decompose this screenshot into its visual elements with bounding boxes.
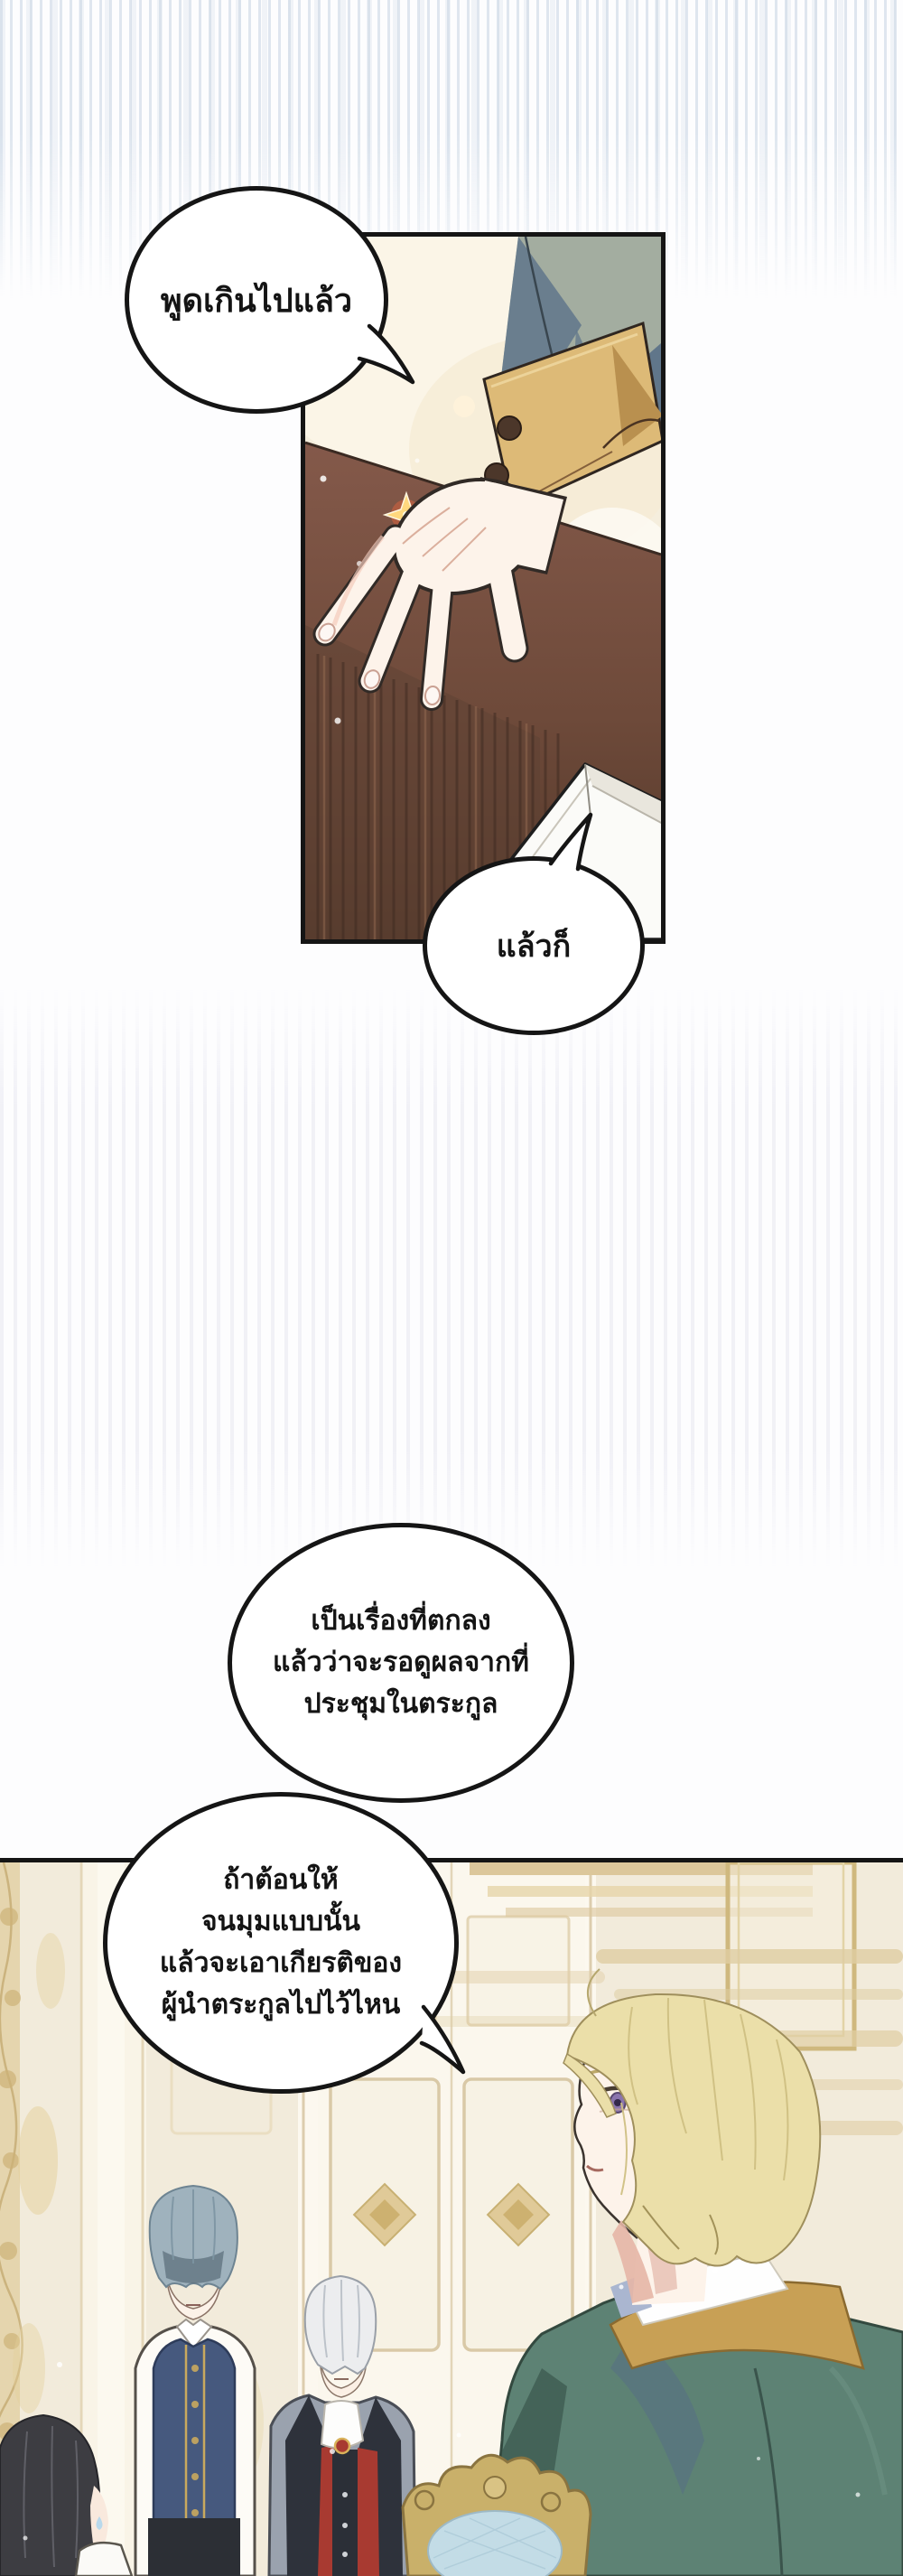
silver-hair — [305, 2276, 376, 2374]
bubble-4-line-1: ถ้าต้อนให้ — [223, 1860, 338, 1901]
bubble-3-line-1: เป็นเรื่องที่ตกลง — [311, 1601, 490, 1642]
boy-trousers — [148, 2518, 240, 2576]
comic-page: พูดเกินไปแล้ว แล้วก็ เป็นเรื่องที่ตกลง แ… — [0, 0, 903, 2576]
blue-hair-boy — [135, 2186, 255, 2576]
bubble-1-tail — [357, 321, 420, 388]
cuff-button — [498, 416, 521, 440]
bubble-4-line-2: จนมุมแบบนั้น — [201, 1901, 360, 1943]
bubble-1-text: พูดเกินไปแล้ว — [161, 275, 352, 326]
bubble-3-line-3: ประชุมในตระกูล — [304, 1684, 498, 1725]
bubble-3-line-2: แล้วว่าจะรอดูผลจากที่ — [273, 1642, 529, 1684]
bubble-2-tail — [542, 809, 605, 873]
bubble-4-tail — [411, 1996, 474, 2086]
striped-background-middle — [0, 989, 903, 1567]
speech-bubble-3: เป็นเรื่องที่ตกลง แล้วว่าจะรอดูผลจากที่ … — [228, 1523, 574, 1803]
speech-bubble-4: ถ้าต้อนให้ จนมุมแบบนั้น แล้วจะเอาเกียรติ… — [103, 1792, 459, 2094]
bubble-4-line-3: แล้วจะเอาเกียรติของ — [160, 1943, 402, 1984]
brooch-gem — [335, 2439, 349, 2453]
speech-bubble-2: แล้วก็ — [423, 856, 645, 1035]
bubble-4-line-4: ผู้นำตระกูลไปไว้ไหน — [162, 1984, 401, 2026]
bubble-2-text: แล้วก็ — [497, 921, 571, 970]
fingernail — [424, 686, 441, 705]
speech-bubble-1: พูดเกินไปแล้ว — [125, 186, 388, 414]
